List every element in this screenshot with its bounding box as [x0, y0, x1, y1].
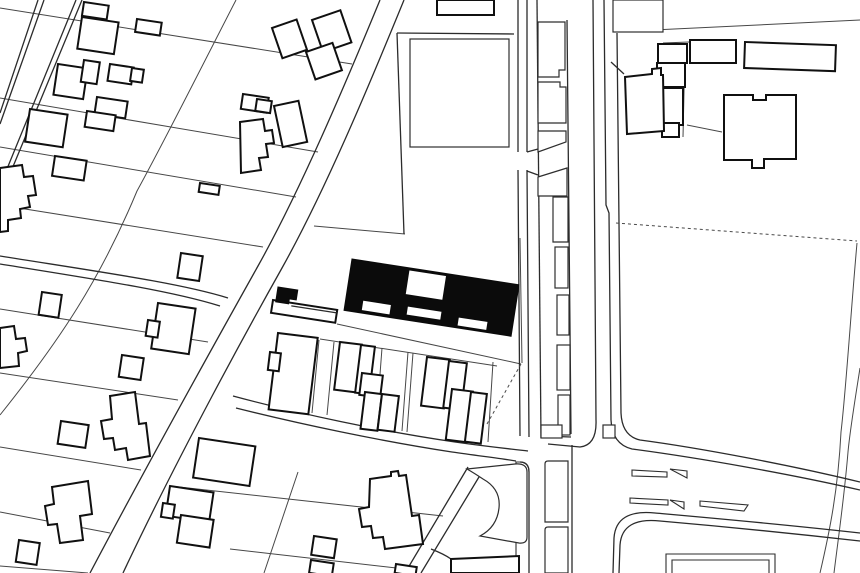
building-rect — [177, 253, 202, 281]
building-rect — [557, 345, 570, 390]
building-rect — [199, 183, 220, 195]
light-structures-path — [538, 22, 565, 77]
building-outlines-path — [724, 95, 796, 168]
building-rect — [603, 425, 615, 438]
building-rect — [744, 42, 836, 71]
building-rect — [555, 247, 568, 288]
building-rect — [690, 40, 736, 63]
building-outlines-path — [451, 556, 519, 573]
building-rect — [311, 536, 337, 558]
building-rect — [135, 19, 162, 36]
light-structures-path — [545, 461, 568, 522]
building-rect — [16, 540, 40, 565]
building-rect — [85, 111, 116, 131]
building-rect — [25, 109, 67, 147]
site-plan-svg: Black-and-white architectural figure-gro… — [0, 0, 860, 573]
building-rect — [613, 0, 663, 32]
building-rect — [378, 394, 399, 432]
building-rect — [269, 333, 318, 414]
light-structures-path — [538, 82, 566, 123]
building-rect — [437, 0, 494, 15]
building-rect — [161, 503, 175, 519]
building-rect — [193, 438, 255, 486]
light-structures-path — [553, 197, 568, 242]
building-rect — [541, 425, 562, 438]
building-rect — [255, 99, 272, 113]
building-rect — [52, 156, 87, 181]
light-structures-path — [545, 527, 568, 573]
building-outlines-path — [625, 68, 664, 134]
building-rect — [39, 292, 62, 318]
building-rect — [81, 60, 100, 84]
building-rect — [177, 515, 214, 548]
building-rect — [146, 320, 160, 338]
building-rect — [130, 68, 144, 83]
building-rect — [663, 88, 683, 125]
building-rect — [410, 39, 509, 147]
building-rect — [658, 44, 687, 63]
building-rect — [268, 352, 281, 371]
building-rect — [309, 560, 334, 573]
building-rect — [557, 295, 569, 335]
site-plan-page: Black-and-white architectural figure-gro… — [0, 0, 860, 573]
building-rect — [119, 355, 144, 380]
building-rect — [58, 421, 89, 448]
building-rect — [77, 17, 118, 54]
